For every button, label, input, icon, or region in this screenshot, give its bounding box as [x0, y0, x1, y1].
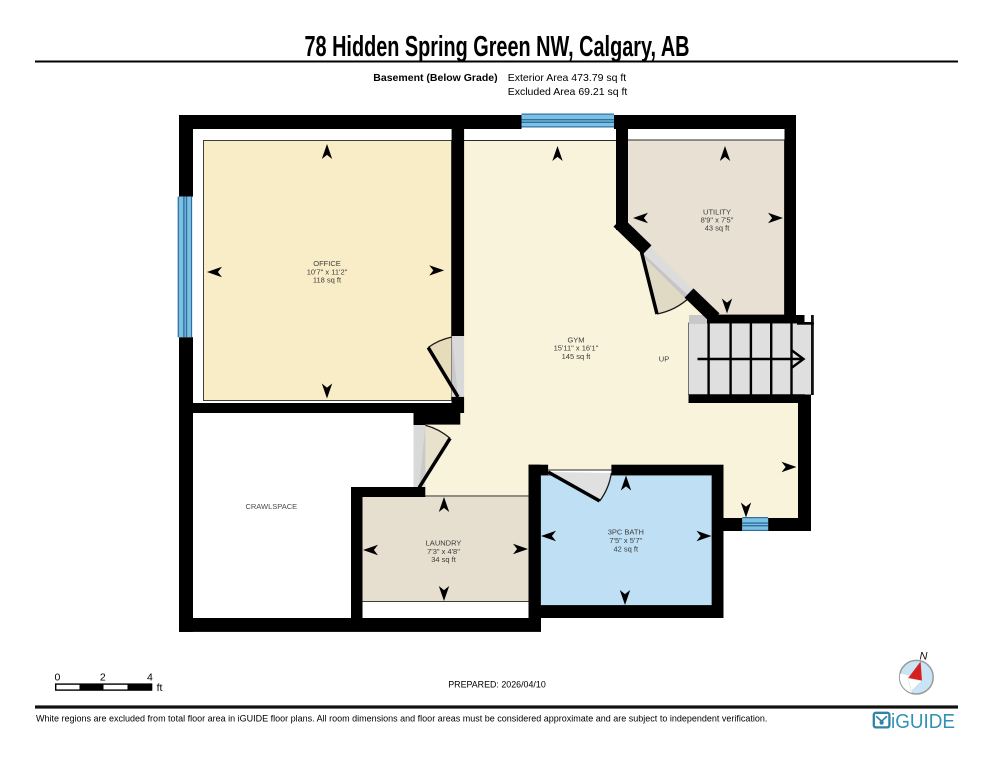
svg-text:0: 0: [54, 672, 60, 684]
svg-text:2: 2: [100, 672, 106, 684]
svg-text:White regions are excluded fro: White regions are excluded from total fl…: [36, 714, 767, 724]
svg-text:Excluded Area 69.21 sq ft: Excluded Area 69.21 sq ft: [508, 86, 628, 98]
svg-text:iGUIDE: iGUIDE: [891, 711, 955, 733]
svg-text:145 sq ft: 145 sq ft: [562, 352, 592, 361]
svg-text:CRAWLSPACE: CRAWLSPACE: [245, 502, 297, 511]
svg-text:PREPARED: 2026/04/10: PREPARED: 2026/04/10: [448, 680, 546, 690]
svg-text:42 sq ft: 42 sq ft: [613, 544, 639, 553]
svg-text:UP: UP: [659, 354, 669, 363]
svg-text:78 Hidden Spring Green NW, Cal: 78 Hidden Spring Green NW, Calgary, AB: [305, 31, 690, 63]
svg-text:Basement (Below Grade): Basement (Below Grade): [373, 72, 497, 84]
svg-text:34 sq ft: 34 sq ft: [431, 555, 457, 564]
svg-text:4: 4: [147, 672, 153, 684]
svg-text:N: N: [920, 651, 928, 663]
svg-text:Exterior Area 473.79 sq ft: Exterior Area 473.79 sq ft: [508, 72, 627, 84]
svg-text:43 sq ft: 43 sq ft: [705, 224, 731, 233]
svg-text:ft: ft: [157, 682, 163, 694]
svg-text:118 sq ft: 118 sq ft: [313, 276, 342, 285]
